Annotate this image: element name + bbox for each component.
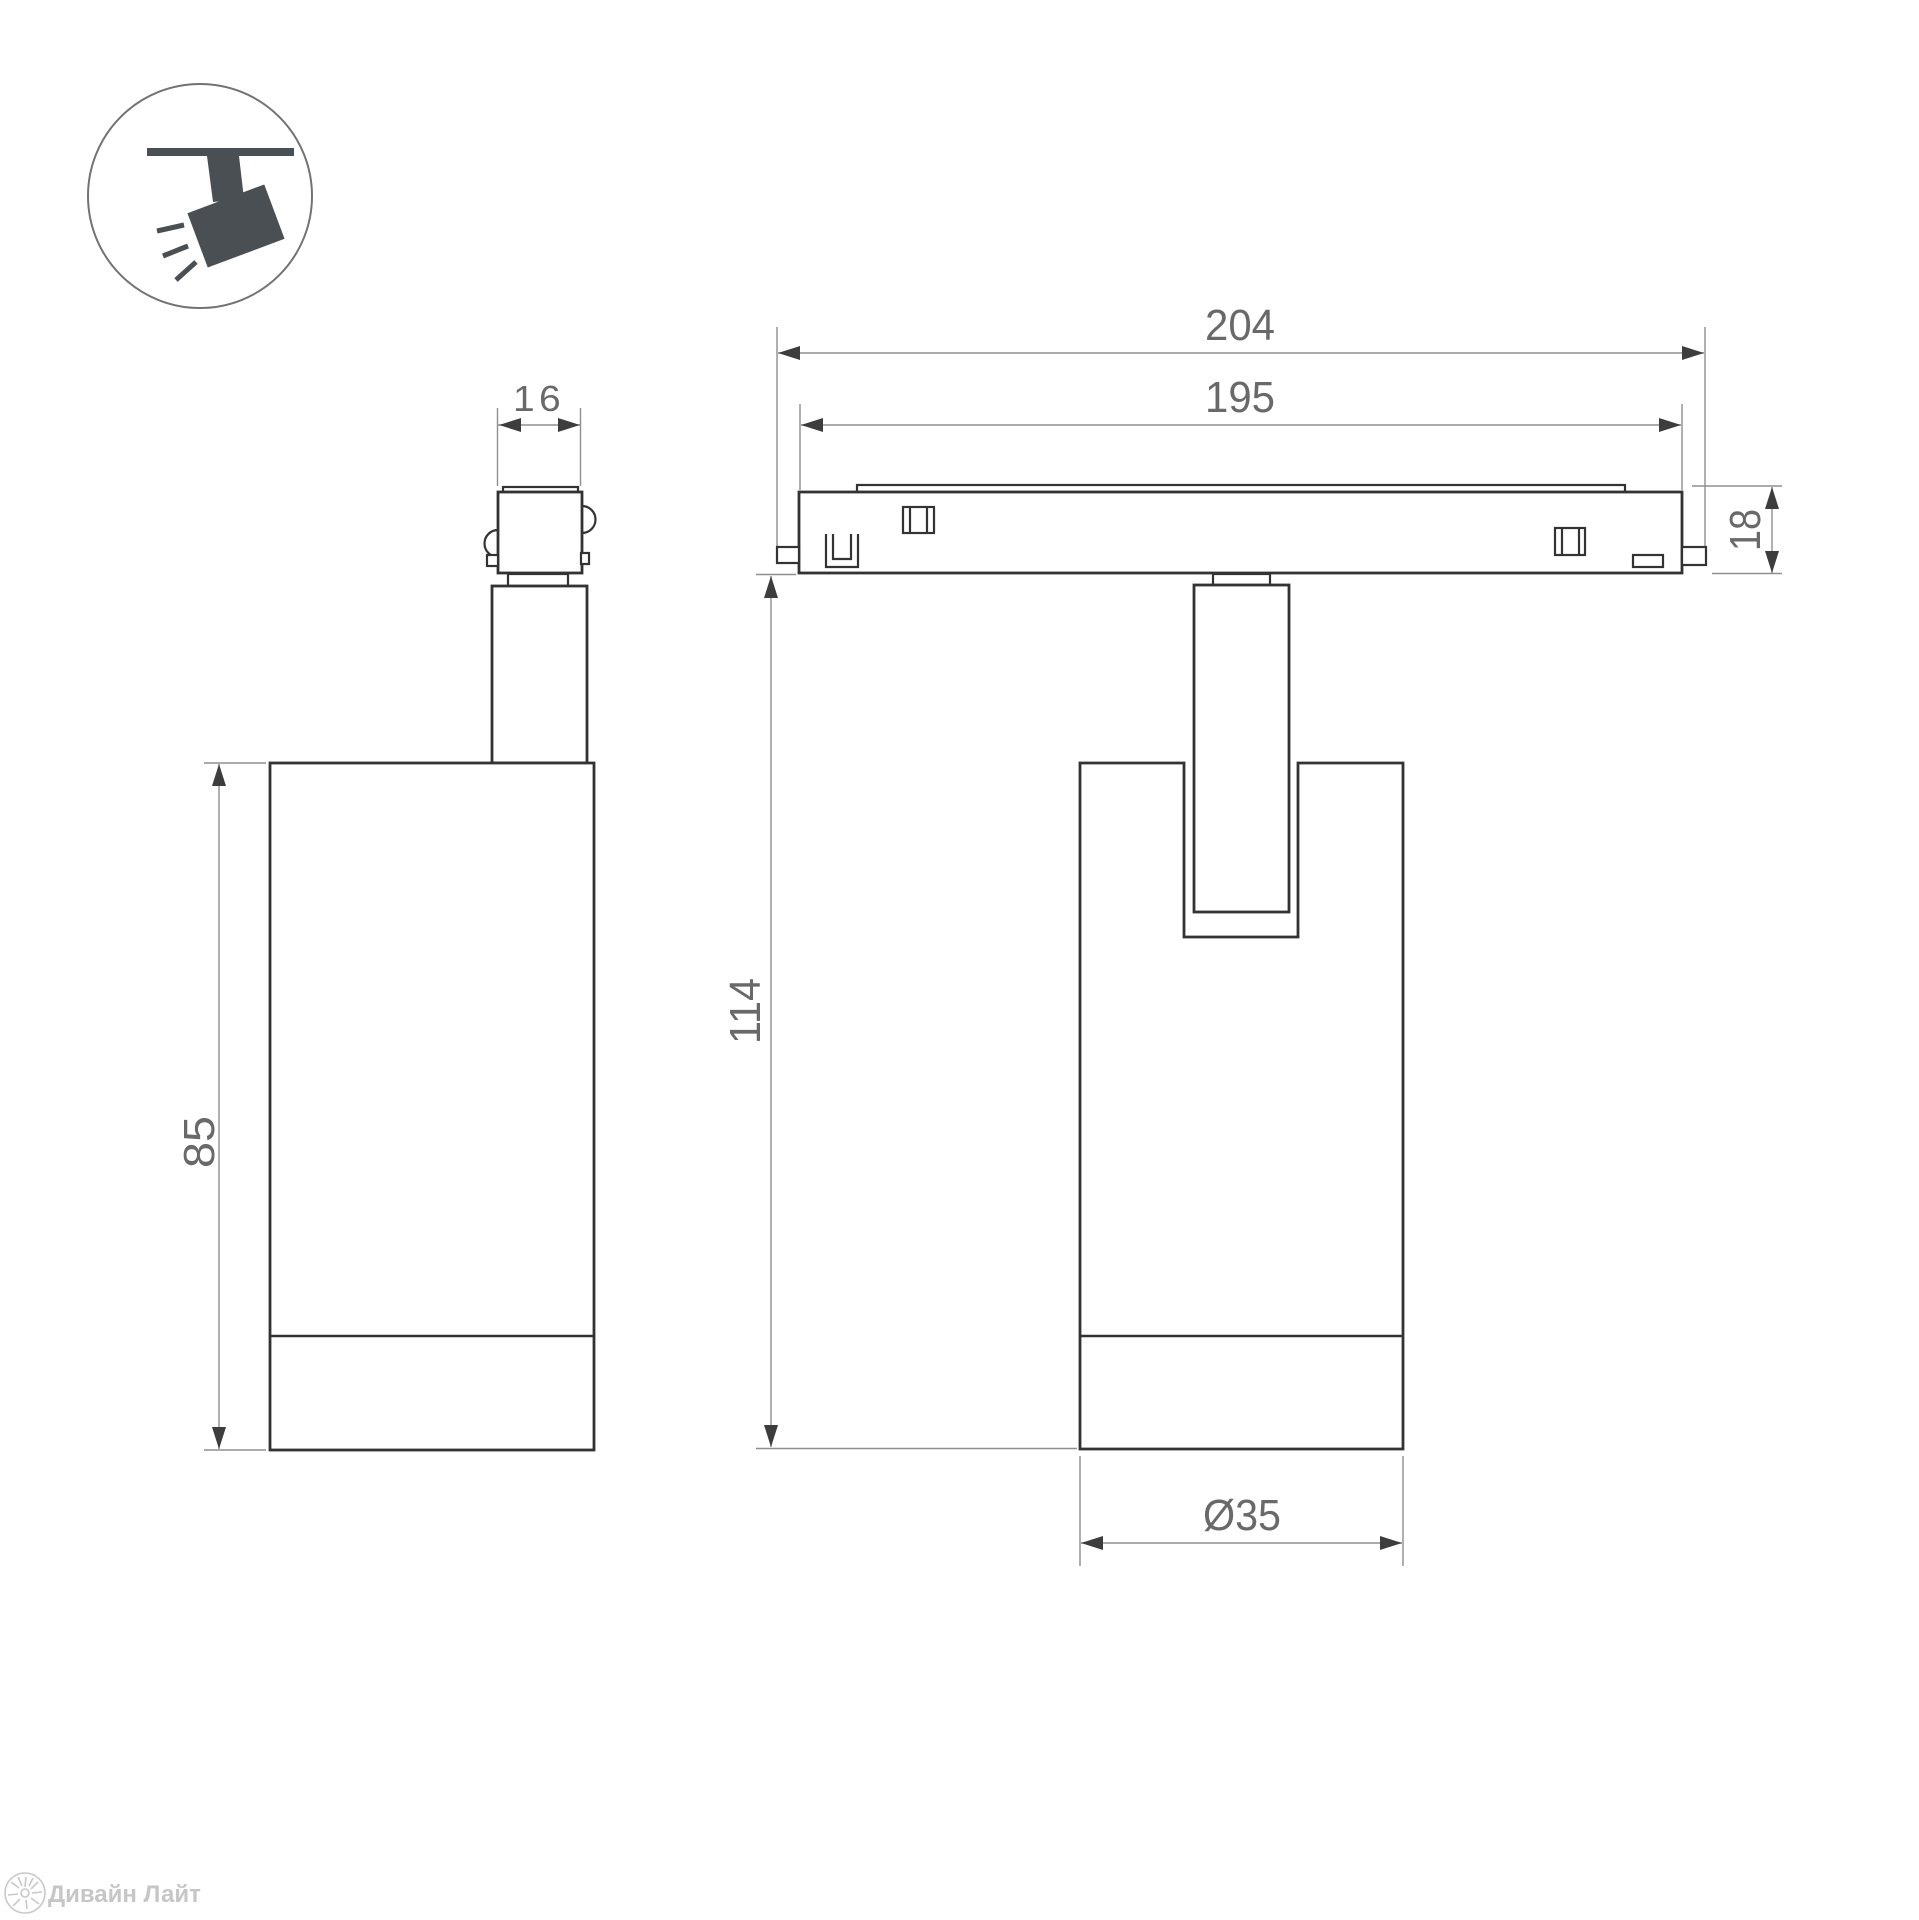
swivel-neck (508, 574, 568, 586)
dim-lamp-height-label: 85 (175, 1116, 224, 1168)
lamp-body (270, 763, 594, 1450)
stem-arm (1194, 585, 1289, 912)
track-end-lug-left (777, 547, 799, 563)
adapter-lug-left (487, 555, 498, 566)
icon-light-ray (157, 225, 184, 231)
adapter-spring-clip-left (485, 530, 499, 557)
track-adapter (498, 492, 582, 573)
dim-total-height-label: 114 (721, 978, 770, 1044)
front-view (777, 485, 1706, 1449)
icon-circle (88, 84, 312, 308)
dim-diameter-label: Ø35 (1203, 1491, 1281, 1540)
dim-adapter-width-label: 16 (513, 378, 565, 419)
swivel-neck (1213, 574, 1270, 585)
track-end-lug-right (1682, 547, 1706, 565)
dimension-drawing: 16 204 195 18 85 114 Ø35 Дивайн Лайт (0, 0, 1919, 1920)
icon-light-ray (176, 262, 196, 280)
watermark: Дивайн Лайт (5, 1873, 201, 1913)
watermark-brand-text: Дивайн Лайт (48, 1881, 201, 1908)
icon-lamp-head (187, 184, 284, 267)
dim-overall-length-label: 204 (1205, 301, 1275, 350)
side-view (270, 487, 596, 1450)
track-spotlight-icon (88, 84, 312, 308)
icon-light-ray (163, 246, 188, 256)
watermark-logo-core (21, 1889, 29, 1897)
adapter-spring-clip-right (582, 506, 596, 533)
watermark-sun-rays (8, 1877, 42, 1909)
dim-body-length-label: 195 (1205, 373, 1275, 422)
technical-drawing-page: 16 204 195 18 85 114 Ø35 Дивайн Лайт (0, 0, 1919, 1920)
stem-arm (492, 586, 587, 763)
dim-track-height-label: 18 (1721, 509, 1770, 551)
icon-track-bar (147, 148, 294, 156)
adapter-lug-right (581, 553, 589, 564)
